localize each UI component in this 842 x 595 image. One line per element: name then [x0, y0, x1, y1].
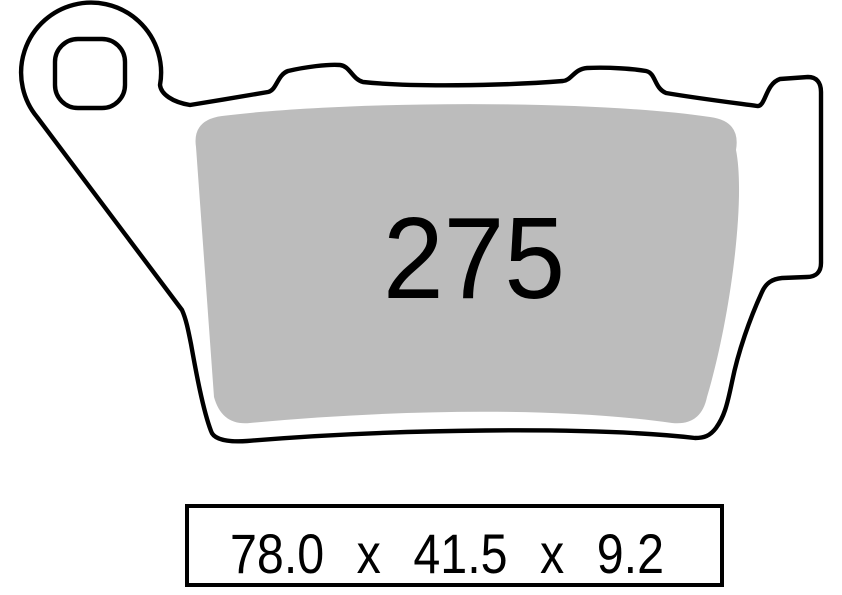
mounting-hole [55, 39, 125, 108]
brake-pad-diagram: 275 78.0 x 41.5 x 9.2 [0, 0, 842, 595]
pad-number-label: 275 [383, 193, 565, 323]
dimensions-text: 78.0 x 41.5 x 9.2 [230, 522, 664, 585]
diagram-canvas: 275 78.0 x 41.5 x 9.2 [0, 0, 842, 595]
